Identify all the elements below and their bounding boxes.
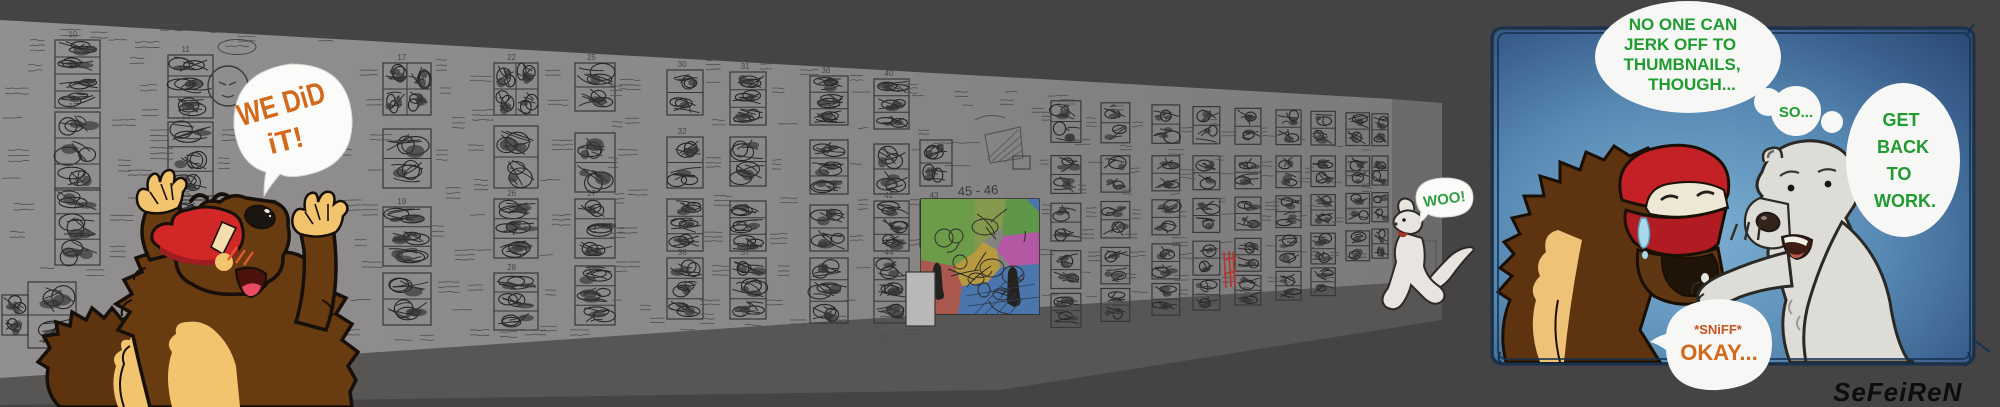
svg-text:28: 28 [507,263,516,272]
svg-text:17: 17 [397,53,406,62]
svg-text:WORK.: WORK. [1874,191,1936,211]
svg-text:13: 13 [182,112,191,121]
svg-text:THUMBNAILS,: THUMBNAILS, [1623,55,1740,74]
svg-text:45 - 46: 45 - 46 [957,182,998,199]
svg-text:12: 12 [69,102,78,111]
svg-text:GET: GET [1882,110,1919,130]
svg-text:44: 44 [885,248,894,257]
svg-text:19: 19 [397,197,406,206]
svg-text:22: 22 [507,53,516,62]
svg-text:30: 30 [678,60,687,69]
svg-text:SeFeiReN: SeFeiReN [1833,377,1963,407]
svg-text:10: 10 [69,30,78,39]
svg-text:*SNiFF*: *SNiFF* [1694,322,1743,337]
svg-text:31: 31 [741,62,750,71]
svg-text:37: 37 [741,248,750,257]
svg-text:25: 25 [587,53,596,62]
svg-text:42: 42 [885,191,894,200]
svg-text:11: 11 [182,45,191,54]
svg-text:SO...: SO... [1779,104,1813,121]
svg-text:38: 38 [821,66,830,75]
svg-text:BACK: BACK [1877,137,1929,157]
svg-text:27: 27 [587,189,596,198]
svg-text:JERK OFF TO: JERK OFF TO [1624,35,1736,54]
svg-text:NO ONE CAN: NO ONE CAN [1629,15,1738,34]
svg-text:26: 26 [507,189,516,198]
svg-text:36: 36 [678,248,687,257]
svg-text:14: 14 [69,178,78,187]
svg-text:32: 32 [678,127,687,136]
svg-text:40: 40 [885,69,894,78]
svg-text:OKAY...: OKAY... [1680,340,1757,365]
svg-text:TO: TO [1887,164,1912,184]
svg-text:THOUGH...: THOUGH... [1648,75,1736,94]
